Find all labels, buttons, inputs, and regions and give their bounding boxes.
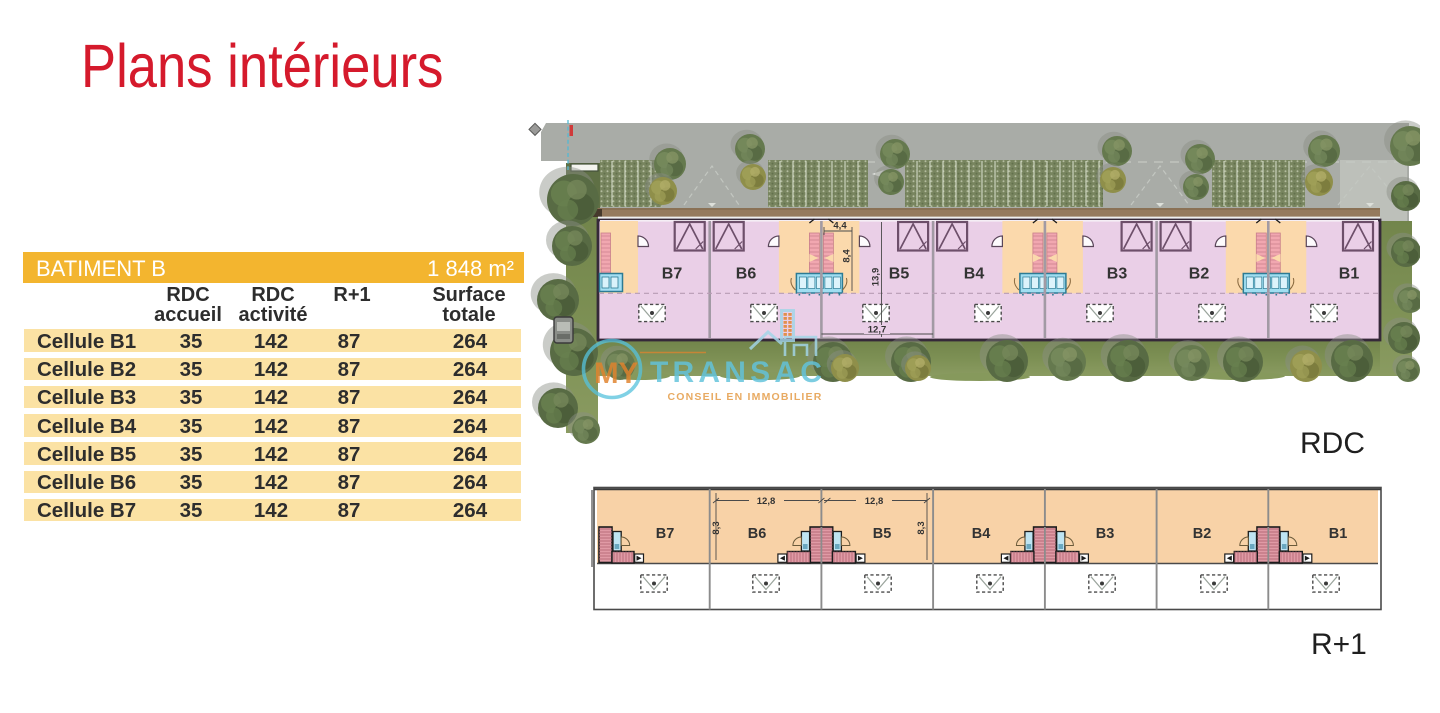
svg-text:CONSEIL EN IMMOBILIER: CONSEIL EN IMMOBILIER (667, 391, 822, 403)
svg-text:13,9: 13,9 (871, 268, 882, 287)
svg-text:B7: B7 (662, 266, 683, 283)
svg-text:B4: B4 (964, 266, 985, 283)
svg-text:B3: B3 (1096, 526, 1115, 542)
svg-text:B5: B5 (889, 266, 910, 283)
svg-text:12,8: 12,8 (865, 496, 884, 507)
svg-text:8,3: 8,3 (711, 521, 722, 534)
svg-text:8,3: 8,3 (916, 521, 927, 534)
svg-text:B7: B7 (656, 526, 675, 542)
svg-text:TRANSAC: TRANSAC (650, 356, 826, 389)
svg-text:B6: B6 (748, 526, 767, 542)
svg-text:B2: B2 (1189, 266, 1210, 283)
svg-text:B6: B6 (736, 266, 757, 283)
svg-text:B5: B5 (873, 526, 892, 542)
svg-text:4,4: 4,4 (833, 221, 847, 232)
svg-text:B3: B3 (1107, 266, 1128, 283)
svg-text:B1: B1 (1329, 526, 1348, 542)
svg-text:MY: MY (594, 357, 639, 390)
svg-text:8,4: 8,4 (842, 249, 853, 263)
svg-text:B1: B1 (1339, 266, 1360, 283)
svg-text:12,8: 12,8 (757, 496, 776, 507)
svg-text:B2: B2 (1193, 526, 1212, 542)
svg-text:12,7: 12,7 (868, 325, 887, 336)
svg-text:B4: B4 (972, 526, 991, 542)
